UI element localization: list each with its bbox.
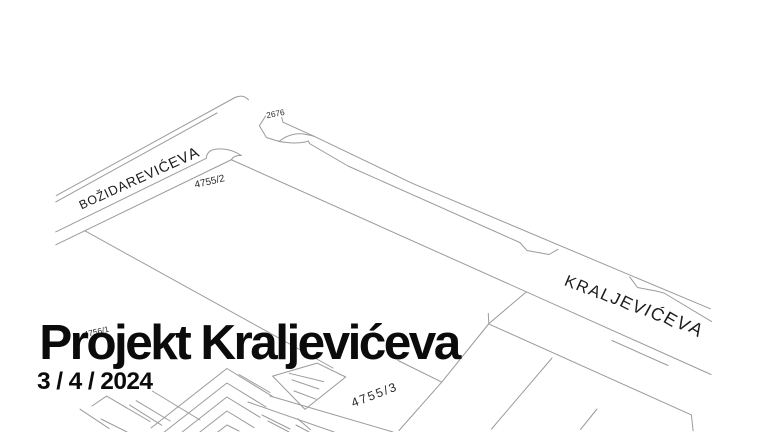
svg-text:4755/3: 4755/3	[349, 380, 399, 411]
svg-text:2676: 2676	[265, 107, 285, 120]
